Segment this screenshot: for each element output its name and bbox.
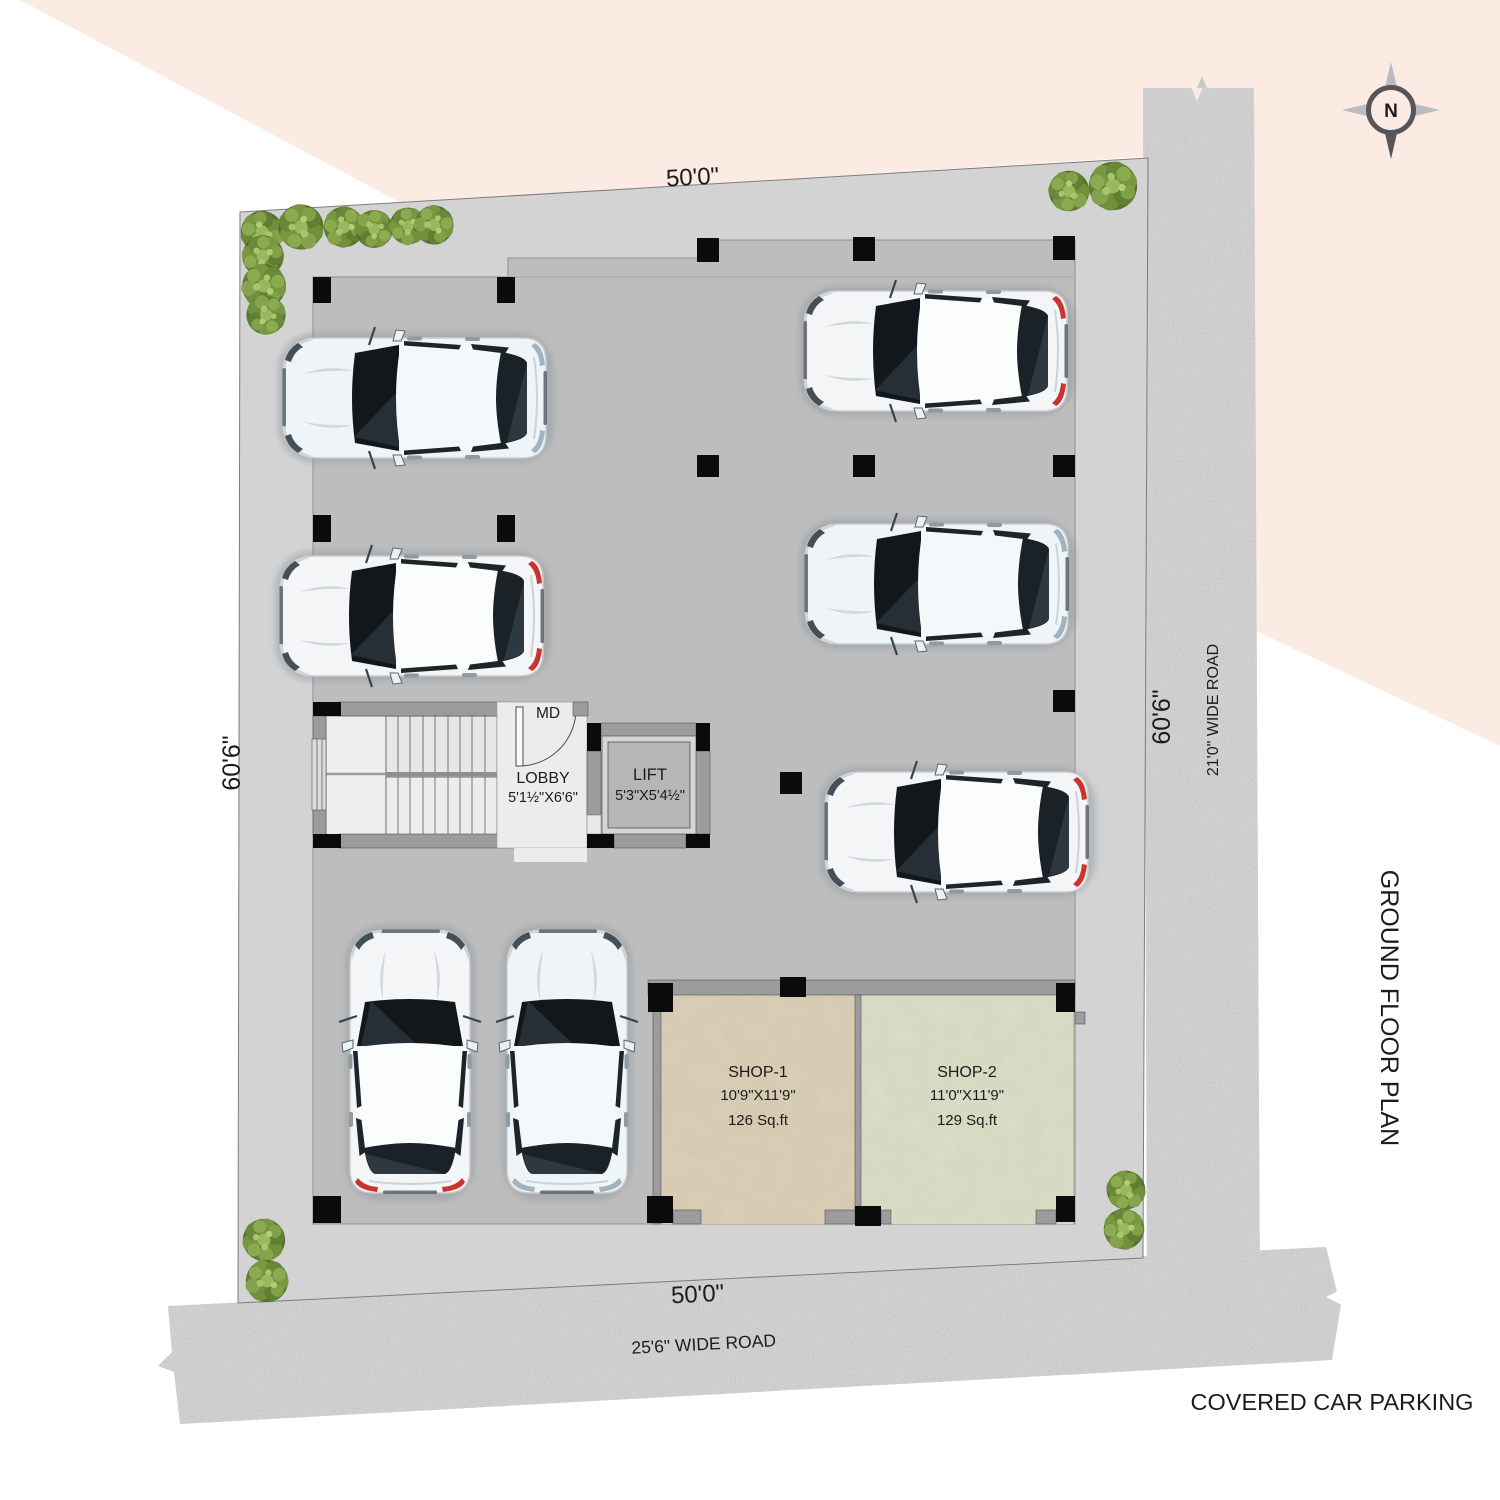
svg-text:11'0"X11'9": 11'0"X11'9": [930, 1087, 1004, 1104]
svg-text:N: N: [1384, 101, 1398, 122]
svg-text:MD: MD: [536, 705, 560, 722]
svg-text:SHOP-2: SHOP-2: [937, 1064, 997, 1081]
svg-text:129 Sq.ft: 129 Sq.ft: [937, 1112, 998, 1129]
svg-text:GROUND FLOOR PLAN: GROUND FLOOR PLAN: [1375, 870, 1403, 1146]
svg-text:COVERED CAR PARKING: COVERED CAR PARKING: [1191, 1389, 1474, 1415]
svg-text:5'1½"X6'6": 5'1½"X6'6": [508, 790, 578, 806]
svg-text:60'6": 60'6": [218, 735, 246, 790]
svg-text:21'0" WIDE ROAD: 21'0" WIDE ROAD: [1205, 644, 1222, 776]
svg-text:5'3"X5'4½": 5'3"X5'4½": [615, 788, 685, 804]
svg-text:60'6": 60'6": [1148, 689, 1176, 744]
svg-text:LOBBY: LOBBY: [516, 770, 570, 787]
svg-text:LIFT: LIFT: [633, 766, 667, 784]
svg-text:SHOP-1: SHOP-1: [728, 1064, 788, 1081]
svg-text:50'0": 50'0": [665, 163, 720, 193]
svg-text:126 Sq.ft: 126 Sq.ft: [728, 1112, 789, 1129]
svg-text:10'9"X11'9": 10'9"X11'9": [720, 1087, 795, 1104]
svg-text:50'0": 50'0": [670, 1280, 724, 1310]
